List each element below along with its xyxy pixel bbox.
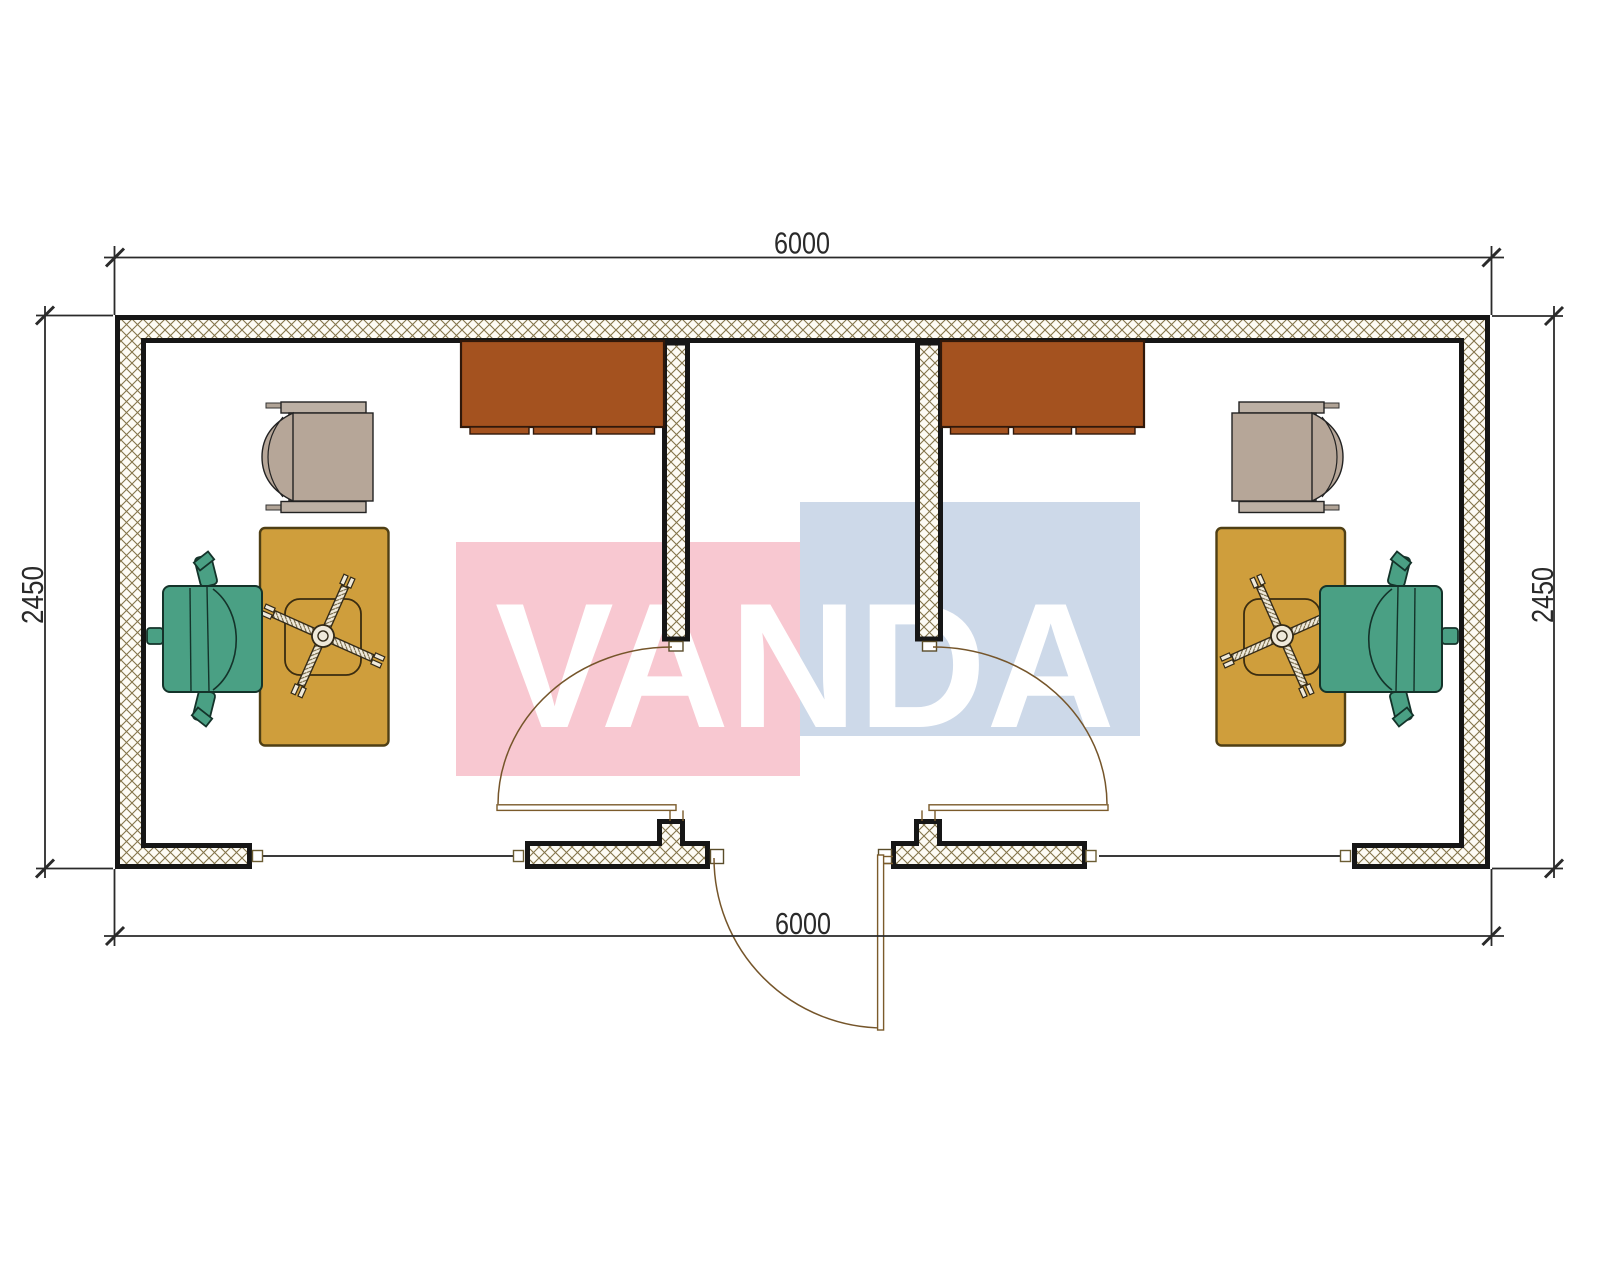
svg-text:6000: 6000 <box>775 906 831 941</box>
svg-text:VANDA: VANDA <box>495 566 1115 765</box>
svg-text:6000: 6000 <box>774 226 830 261</box>
svg-text:2450: 2450 <box>15 566 50 624</box>
svg-text:2450: 2450 <box>1525 567 1560 623</box>
